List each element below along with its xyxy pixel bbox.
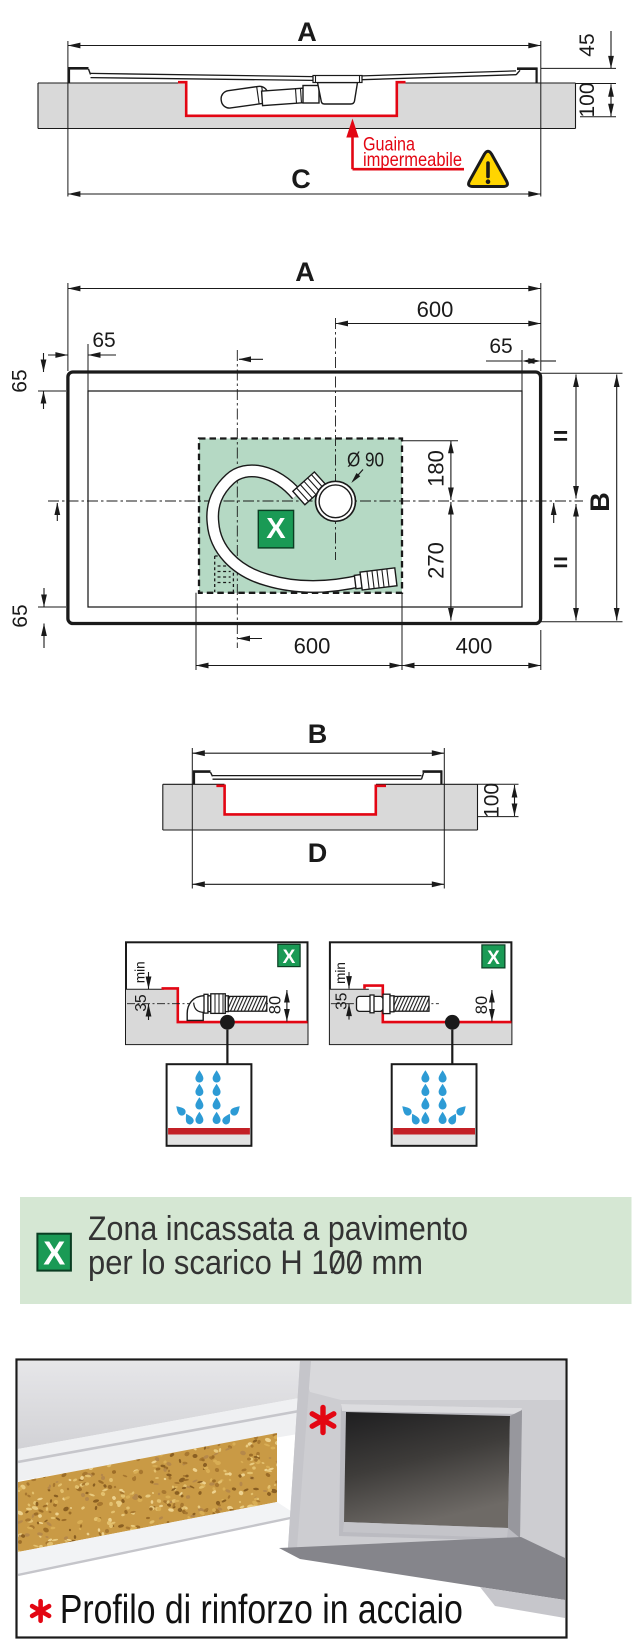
svg-text:Ø 90: Ø 90 (347, 450, 384, 472)
svg-text:100: 100 (481, 783, 504, 818)
svg-text:Profilo di rinforzo in acciaio: Profilo di rinforzo in acciaio (60, 1586, 463, 1632)
svg-text:65: 65 (92, 329, 115, 352)
svg-text:65: 65 (9, 369, 32, 392)
svg-text:80: 80 (267, 996, 285, 1014)
svg-text:B: B (585, 492, 615, 512)
svg-text:45: 45 (576, 33, 599, 56)
svg-text:min: min (133, 961, 148, 983)
svg-text:A: A (297, 17, 317, 47)
svg-text:B: B (308, 719, 328, 749)
svg-text:600: 600 (417, 297, 454, 322)
svg-text:min: min (333, 962, 348, 984)
svg-text:80: 80 (473, 996, 491, 1014)
svg-text:100: 100 (576, 82, 599, 117)
svg-text:35: 35 (334, 993, 351, 1010)
svg-text:C: C (291, 164, 311, 194)
svg-text:Zona incassata a pavimento: Zona incassata a pavimento (88, 1210, 468, 1248)
svg-text:400: 400 (456, 634, 493, 659)
svg-text:600: 600 (294, 634, 331, 659)
svg-text:per lo scarico H 100 mm: per lo scarico H 100 mm (88, 1244, 423, 1282)
svg-text:impermeabile: impermeabile (363, 149, 462, 171)
svg-text:180: 180 (424, 450, 449, 487)
svg-text:=: = (553, 547, 568, 577)
svg-text:65: 65 (489, 335, 512, 358)
svg-text:X: X (43, 1235, 65, 1272)
svg-text:X: X (266, 513, 286, 545)
svg-text:X: X (283, 947, 296, 968)
svg-text:35: 35 (133, 994, 150, 1011)
svg-text:=: = (553, 421, 568, 451)
svg-text:65: 65 (9, 604, 32, 627)
svg-text:270: 270 (424, 542, 449, 579)
svg-text:A: A (295, 257, 315, 287)
svg-text:D: D (308, 838, 328, 868)
svg-text:X: X (487, 948, 500, 969)
